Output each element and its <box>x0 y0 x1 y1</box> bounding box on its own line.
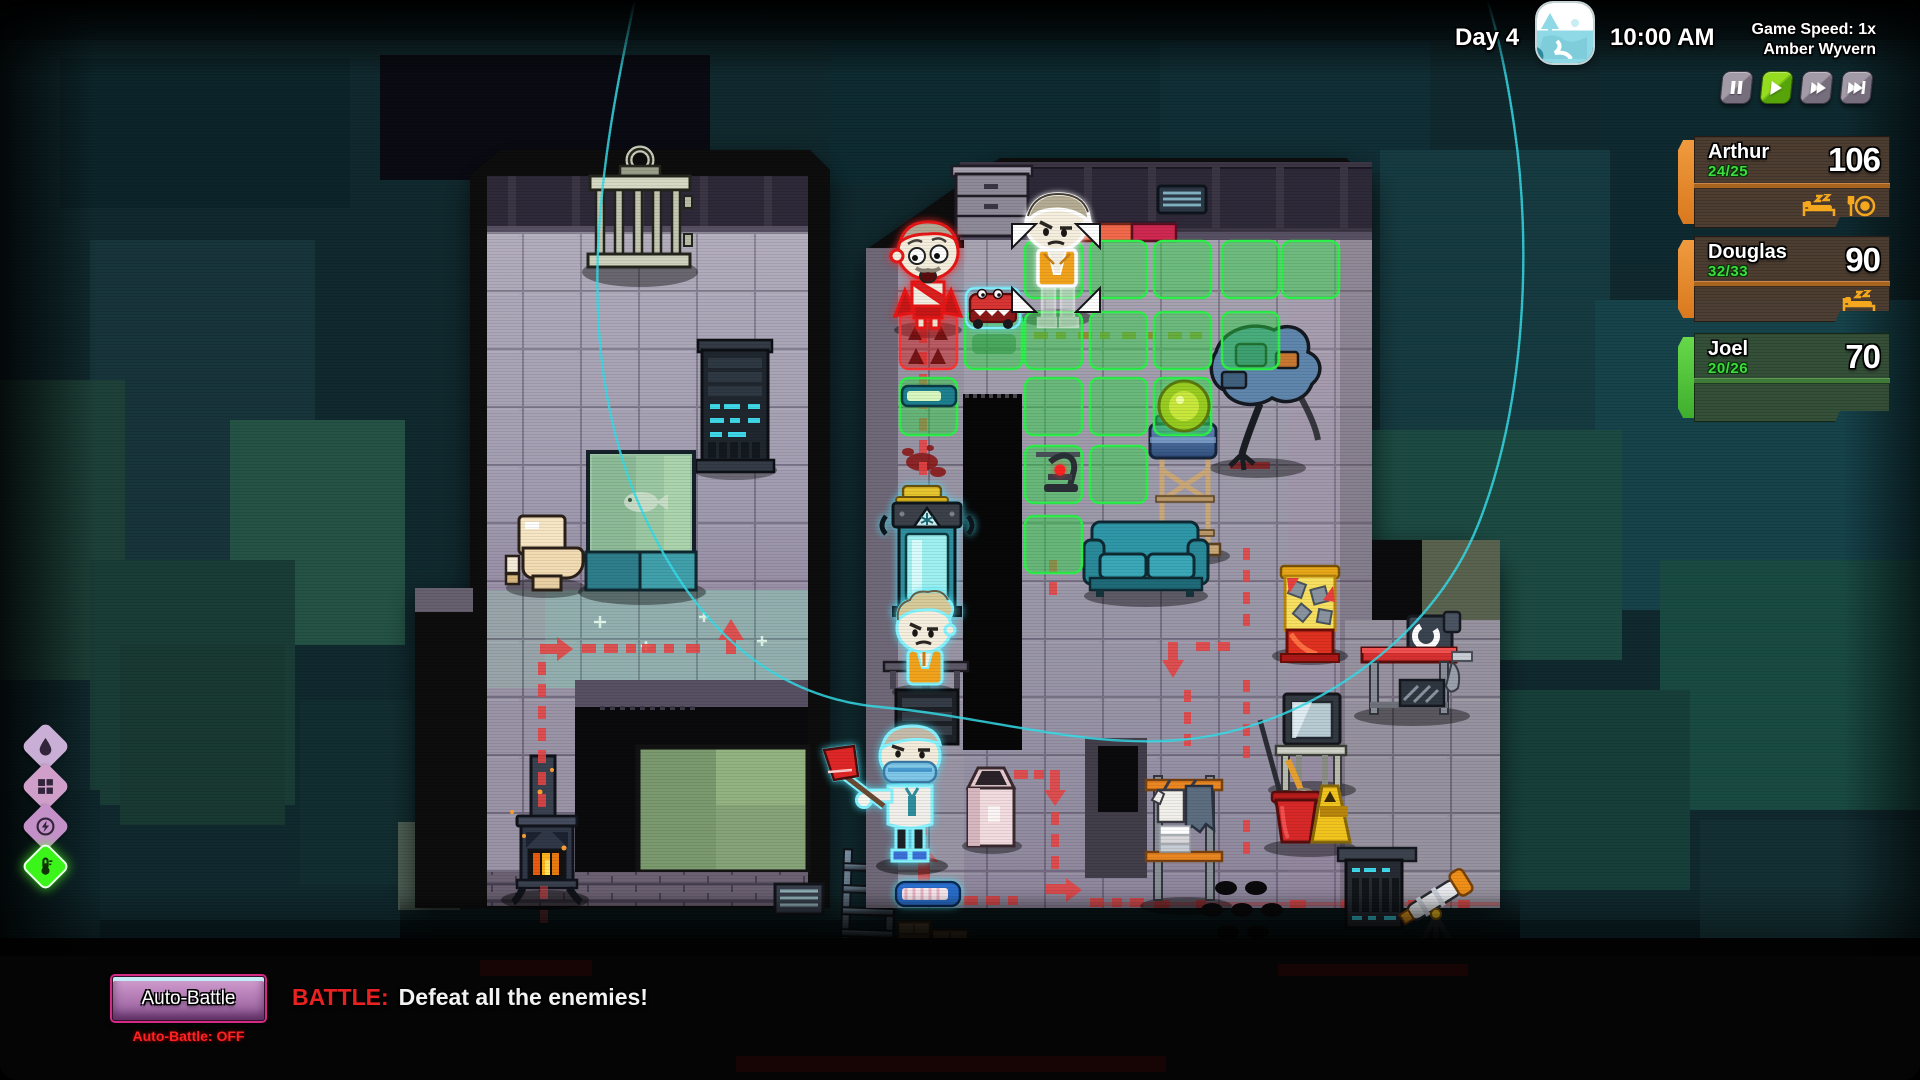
party-panel-douglas[interactable]: Douglas 32/33 90 <box>1678 236 1890 322</box>
character-name: Douglas <box>1708 241 1787 264</box>
movement-tile[interactable] <box>1154 241 1211 298</box>
speed-block: Game Speed: 1x Amber Wyvern <box>1752 20 1877 60</box>
movement-tile[interactable] <box>1154 312 1211 369</box>
power-indicator[interactable] <box>28 809 63 844</box>
game-speed-label: Game Speed: 1x <box>1752 20 1877 40</box>
daytime-landscape-icon <box>1537 3 1593 63</box>
sleep-bed-icon <box>1842 290 1876 314</box>
movement-tile[interactable] <box>1025 516 1082 573</box>
ship-name-label: Amber Wyvern <box>1752 40 1877 60</box>
movement-tile[interactable] <box>1090 446 1147 503</box>
movement-tile[interactable] <box>1282 241 1339 298</box>
battle-objective: BATTLE:Defeat all the enemies! <box>292 984 648 1011</box>
storage-indicator[interactable] <box>28 769 63 804</box>
skip-button[interactable] <box>1839 71 1873 104</box>
character-hp: 20/26 <box>1708 360 1748 377</box>
danger-tile[interactable] <box>900 312 957 369</box>
character-value: 90 <box>1845 241 1880 279</box>
day-label: Day 4 <box>1455 24 1519 52</box>
wall-vent-upper <box>1158 186 1206 213</box>
temperature-indicator[interactable] <box>28 849 63 884</box>
couch[interactable] <box>1084 522 1208 607</box>
objective-label: BATTLE: <box>292 984 389 1010</box>
movement-tile[interactable] <box>1025 378 1082 435</box>
objective-text: Defeat all the enemies! <box>399 984 648 1010</box>
blocks-icon <box>36 777 55 796</box>
water-indicator[interactable] <box>28 729 63 764</box>
play-button[interactable] <box>1759 71 1793 104</box>
fast-forward-button[interactable] <box>1799 71 1833 104</box>
character-name: Arthur <box>1708 141 1769 164</box>
movement-tile[interactable] <box>1222 312 1279 369</box>
character-hp: 32/33 <box>1708 263 1748 280</box>
movement-tile[interactable] <box>1090 378 1147 435</box>
panel-accent-tab <box>1678 240 1695 318</box>
party-panel-arthur[interactable]: Arthur 24/25 106 <box>1678 136 1890 228</box>
generator-orb <box>1159 381 1209 431</box>
sleep-bed-icon <box>1802 194 1836 218</box>
fish-tank[interactable] <box>578 452 706 605</box>
panel-accent-tab <box>1678 140 1695 224</box>
character-name: Joel <box>1708 338 1748 361</box>
bottom-bar: Auto-Battle Auto-Battle: OFF BATTLE:Defe… <box>0 956 1920 1080</box>
party-panel-joel[interactable]: Joel 20/26 70 <box>1678 333 1890 422</box>
play-icon <box>1770 81 1782 95</box>
time-label: 10:00 AM <box>1610 24 1714 52</box>
loading-bar-small <box>902 386 956 406</box>
movement-tile[interactable] <box>1090 312 1147 369</box>
character-hp: 24/25 <box>1708 163 1748 180</box>
pedestal-box[interactable] <box>968 768 1014 846</box>
game-screen: Day 4 10:00 AM Game Speed: 1x Amber Wyve… <box>0 0 1920 1080</box>
battle-map <box>0 0 1920 1080</box>
water-drop-icon <box>36 737 55 756</box>
panel-accent-tab <box>1678 337 1695 418</box>
pause-button[interactable] <box>1719 71 1753 104</box>
pause-icon <box>1730 81 1735 94</box>
character-value: 70 <box>1845 338 1880 376</box>
playback-controls <box>1721 71 1872 104</box>
auto-battle-button[interactable]: Auto-Battle <box>112 976 265 1021</box>
thermometer-icon <box>36 857 55 876</box>
auto-battle-status: Auto-Battle: OFF <box>112 1028 265 1044</box>
character-value: 106 <box>1828 141 1880 179</box>
power-bolt-icon <box>36 817 55 836</box>
server-rack[interactable] <box>693 340 777 480</box>
movement-tile[interactable] <box>1222 241 1279 298</box>
hunger-meal-icon <box>1846 194 1876 218</box>
